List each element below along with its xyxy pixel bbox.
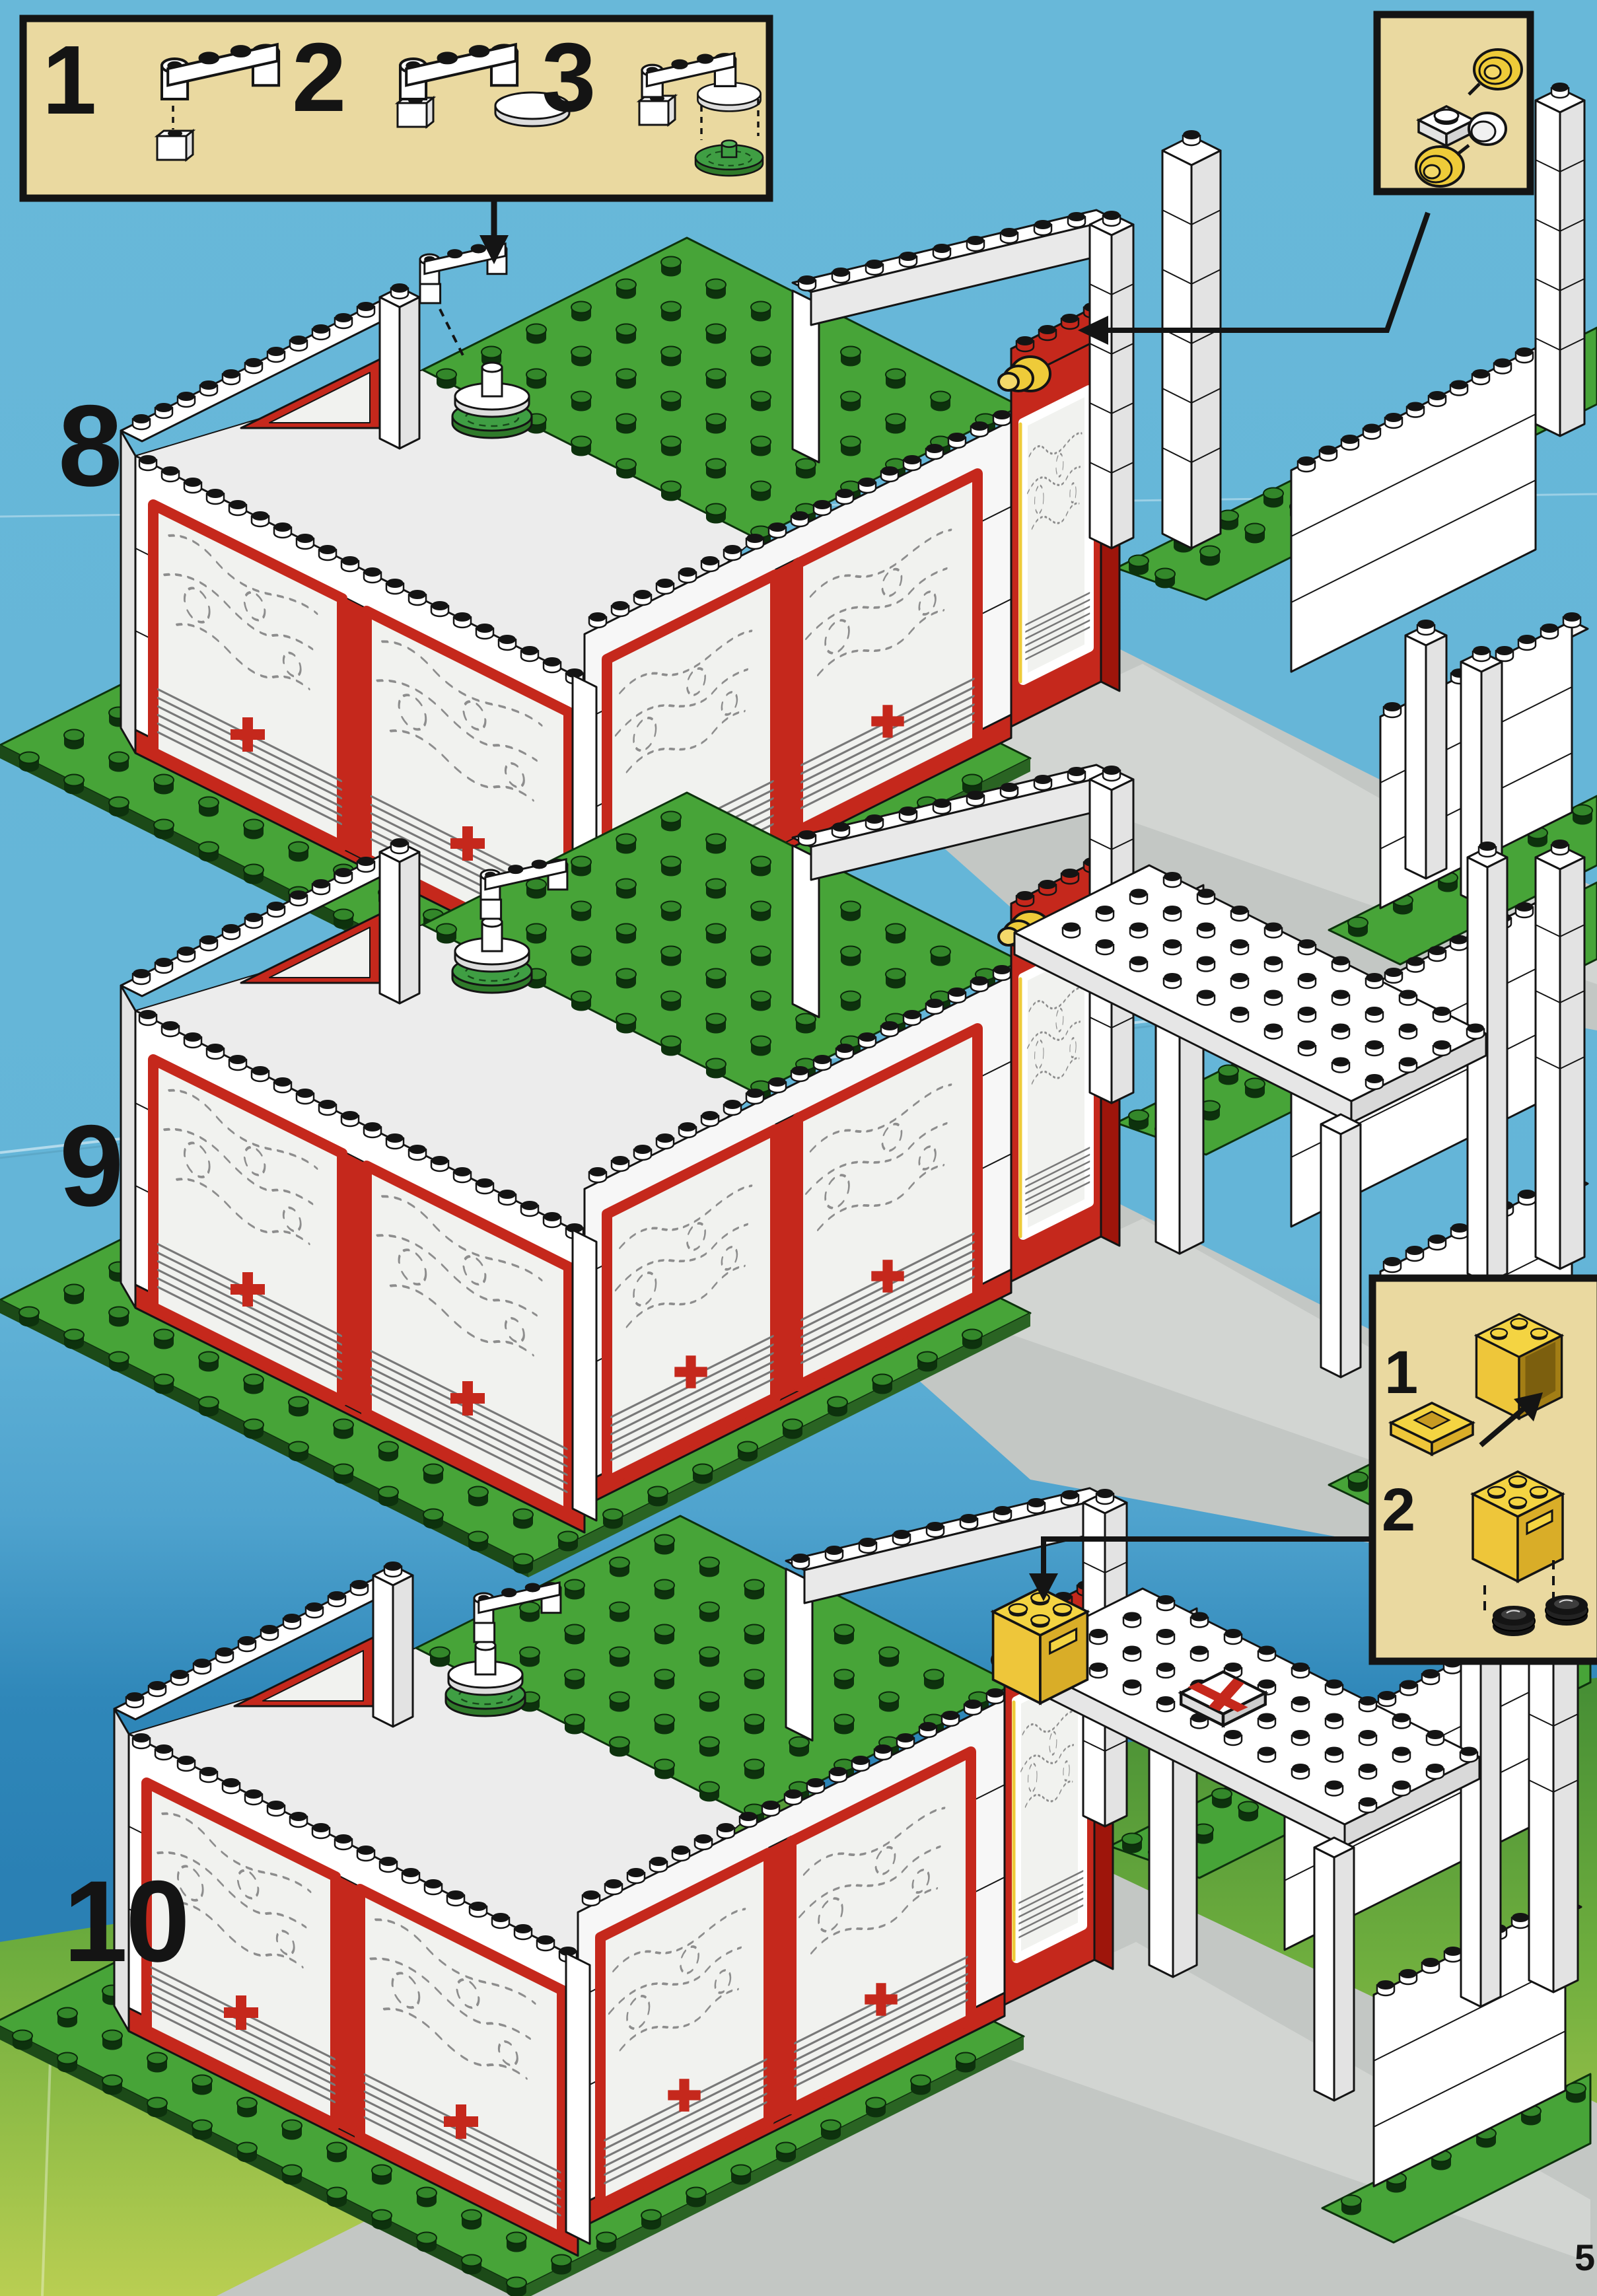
callout-lamp-assembly: [1377, 15, 1530, 192]
container-substep-2: 2: [1382, 1480, 1413, 1540]
yellow-container-on-wall: [993, 1588, 1088, 1703]
step-9-number: 9: [59, 1108, 122, 1224]
callout-antenna-assembly: [23, 18, 769, 198]
step-8-number: 8: [58, 388, 120, 504]
callout-container-assembly: [1372, 1278, 1597, 1661]
page-number: 5: [1575, 2239, 1595, 2276]
step-10-number: 10: [63, 1864, 188, 1980]
antenna-substep-2: 2: [292, 29, 344, 127]
instruction-illustration: [0, 0, 1597, 2296]
antenna-substep-1: 1: [42, 32, 94, 129]
antenna-substep-3: 3: [542, 29, 594, 127]
lego-instruction-page: 8 9 10 1 2 3 1 2 5: [0, 0, 1597, 2296]
container-substep-1: 1: [1384, 1342, 1416, 1403]
